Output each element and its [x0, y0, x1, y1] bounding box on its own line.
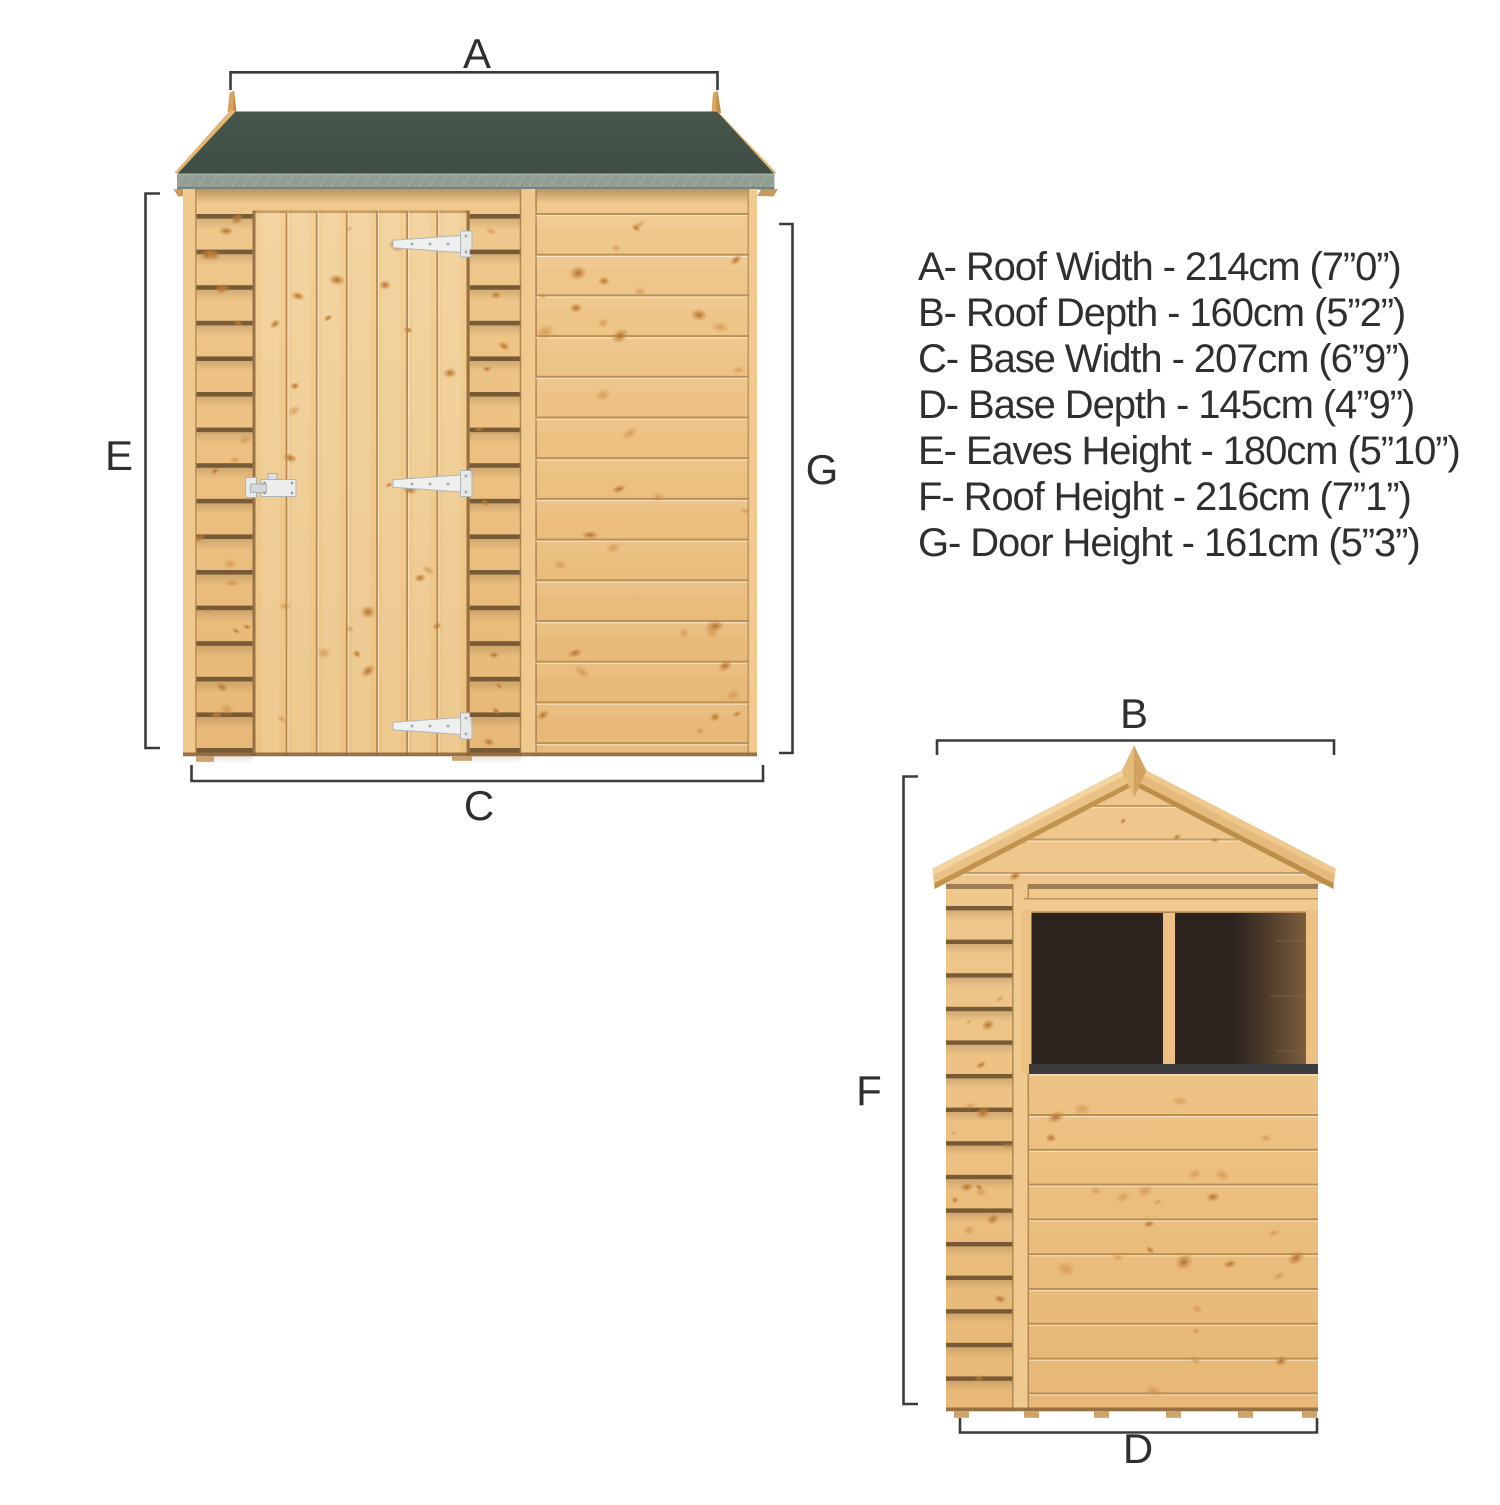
- svg-text:G- Door Height - 161cm (5”3”): G- Door Height - 161cm (5”3”): [918, 521, 1420, 565]
- svg-text:C- Base Width - 207cm (6”9”): C- Base Width - 207cm (6”9”): [918, 337, 1410, 381]
- svg-text:B: B: [1120, 690, 1148, 737]
- svg-text:F- Roof Height - 216cm (7”1”): F- Roof Height - 216cm (7”1”): [918, 475, 1411, 519]
- svg-text:C: C: [464, 782, 494, 829]
- svg-text:A- Roof Width - 214cm (7”0”): A- Roof Width - 214cm (7”0”): [918, 245, 1401, 289]
- svg-text:B- Roof Depth - 160cm (5”2”): B- Roof Depth - 160cm (5”2”): [918, 291, 1405, 335]
- svg-text:G: G: [806, 446, 839, 493]
- svg-text:A: A: [463, 30, 491, 77]
- svg-text:D: D: [1123, 1425, 1153, 1472]
- svg-text:E: E: [105, 432, 133, 479]
- svg-text:E- Eaves Height - 180cm (5”10”: E- Eaves Height - 180cm (5”10”): [918, 429, 1460, 473]
- svg-text:D- Base Depth - 145cm (4”9”): D- Base Depth - 145cm (4”9”): [918, 383, 1414, 427]
- svg-text:F: F: [856, 1067, 882, 1114]
